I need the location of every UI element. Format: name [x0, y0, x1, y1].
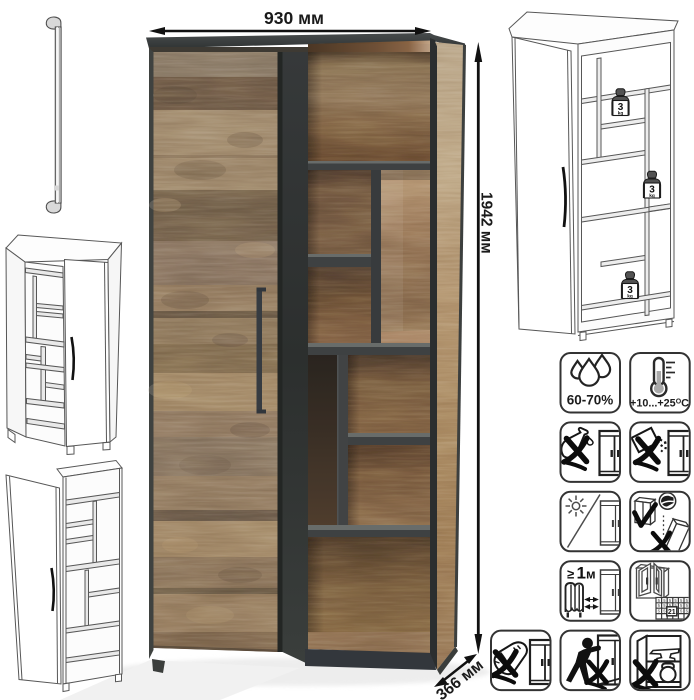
svg-text:+10...+25ОС: +10...+25ОС — [630, 398, 689, 410]
svg-text:21: 21 — [668, 609, 676, 616]
svg-text:≥: ≥ — [567, 567, 574, 582]
svg-text:1: 1 — [577, 564, 586, 583]
svg-text:60-70%: 60-70% — [567, 393, 614, 408]
svg-text:м: м — [586, 567, 596, 582]
svg-text:930 мм: 930 мм — [264, 8, 324, 28]
svg-text:1942 мм: 1942 мм — [478, 192, 495, 254]
